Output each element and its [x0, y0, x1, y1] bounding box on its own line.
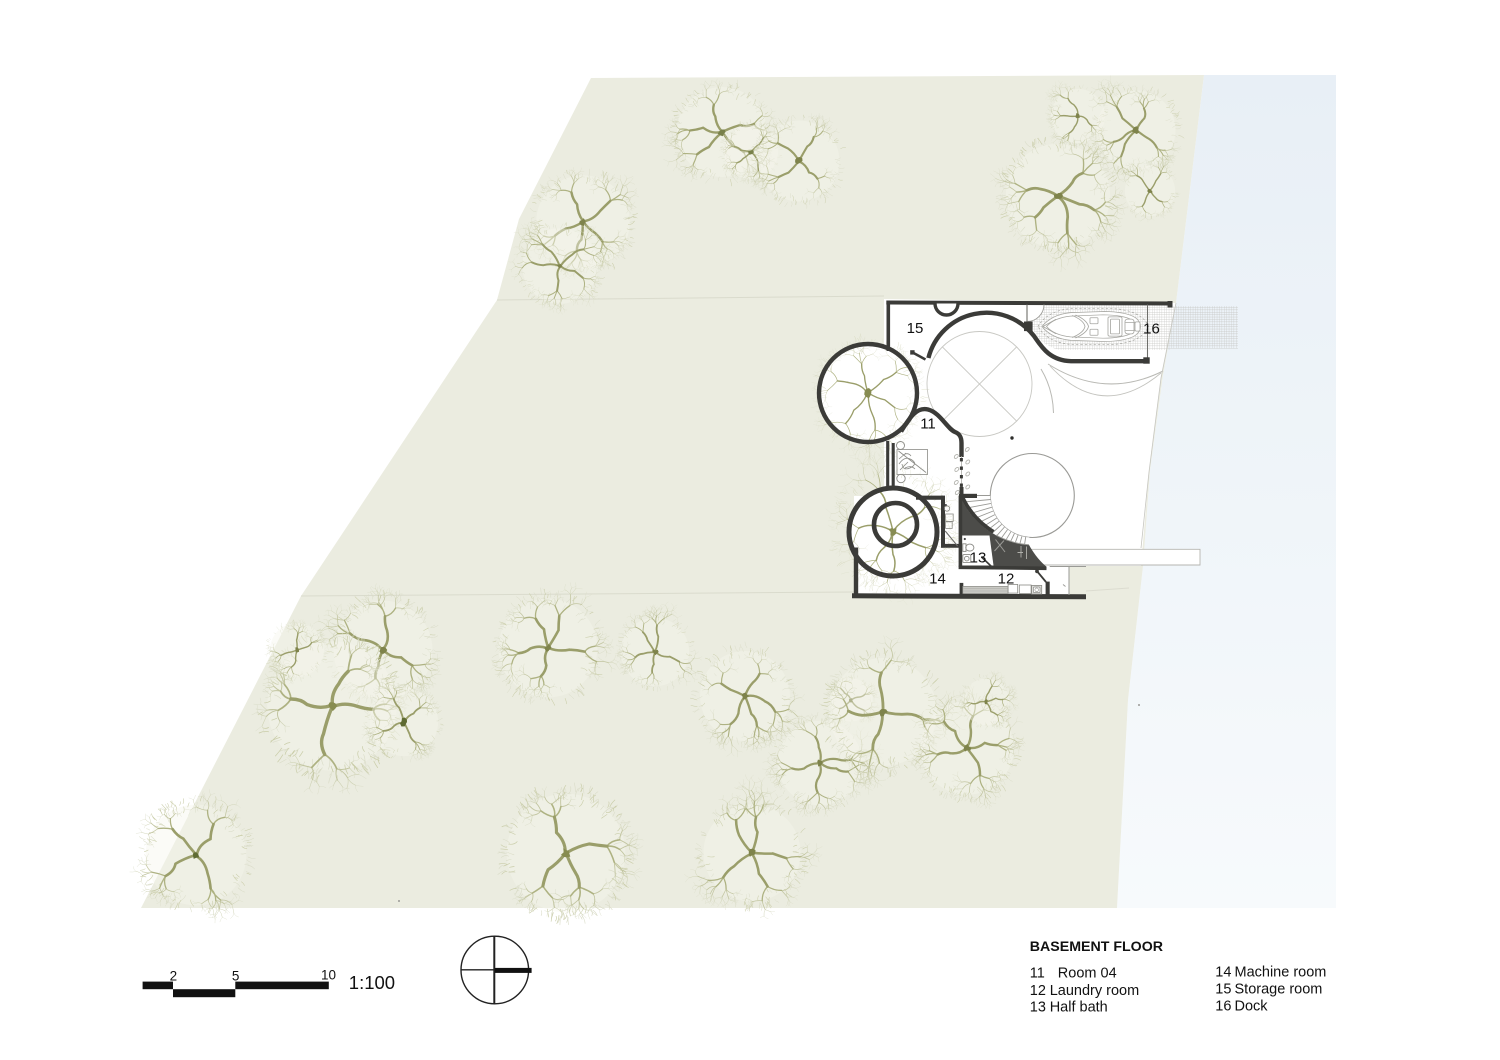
- svg-text:Room 04: Room 04: [1058, 966, 1117, 982]
- svg-text:15: 15: [907, 320, 924, 337]
- svg-text:13: 13: [1030, 999, 1046, 1015]
- svg-text:1:100: 1:100: [349, 972, 395, 993]
- svg-text:5: 5: [232, 969, 240, 984]
- svg-text:Storage room: Storage room: [1235, 981, 1323, 997]
- svg-text:14: 14: [1215, 965, 1231, 981]
- svg-text:15: 15: [1215, 981, 1231, 997]
- svg-text:Machine room: Machine room: [1235, 965, 1327, 981]
- svg-text:16: 16: [1215, 999, 1231, 1015]
- svg-text:16: 16: [1143, 321, 1160, 338]
- svg-text:2: 2: [170, 969, 178, 984]
- svg-text:14: 14: [929, 571, 946, 588]
- svg-text:11: 11: [1030, 966, 1045, 982]
- svg-text:Half bath: Half bath: [1050, 999, 1108, 1015]
- svg-text:12: 12: [1030, 983, 1046, 999]
- svg-text:12: 12: [998, 571, 1015, 588]
- svg-text:BASEMENT FLOOR: BASEMENT FLOOR: [1030, 939, 1163, 955]
- svg-text:Dock: Dock: [1235, 999, 1269, 1015]
- svg-text:13: 13: [970, 550, 987, 567]
- svg-text:11: 11: [920, 416, 936, 433]
- svg-text:10: 10: [321, 968, 336, 983]
- svg-text:Laundry room: Laundry room: [1050, 983, 1139, 999]
